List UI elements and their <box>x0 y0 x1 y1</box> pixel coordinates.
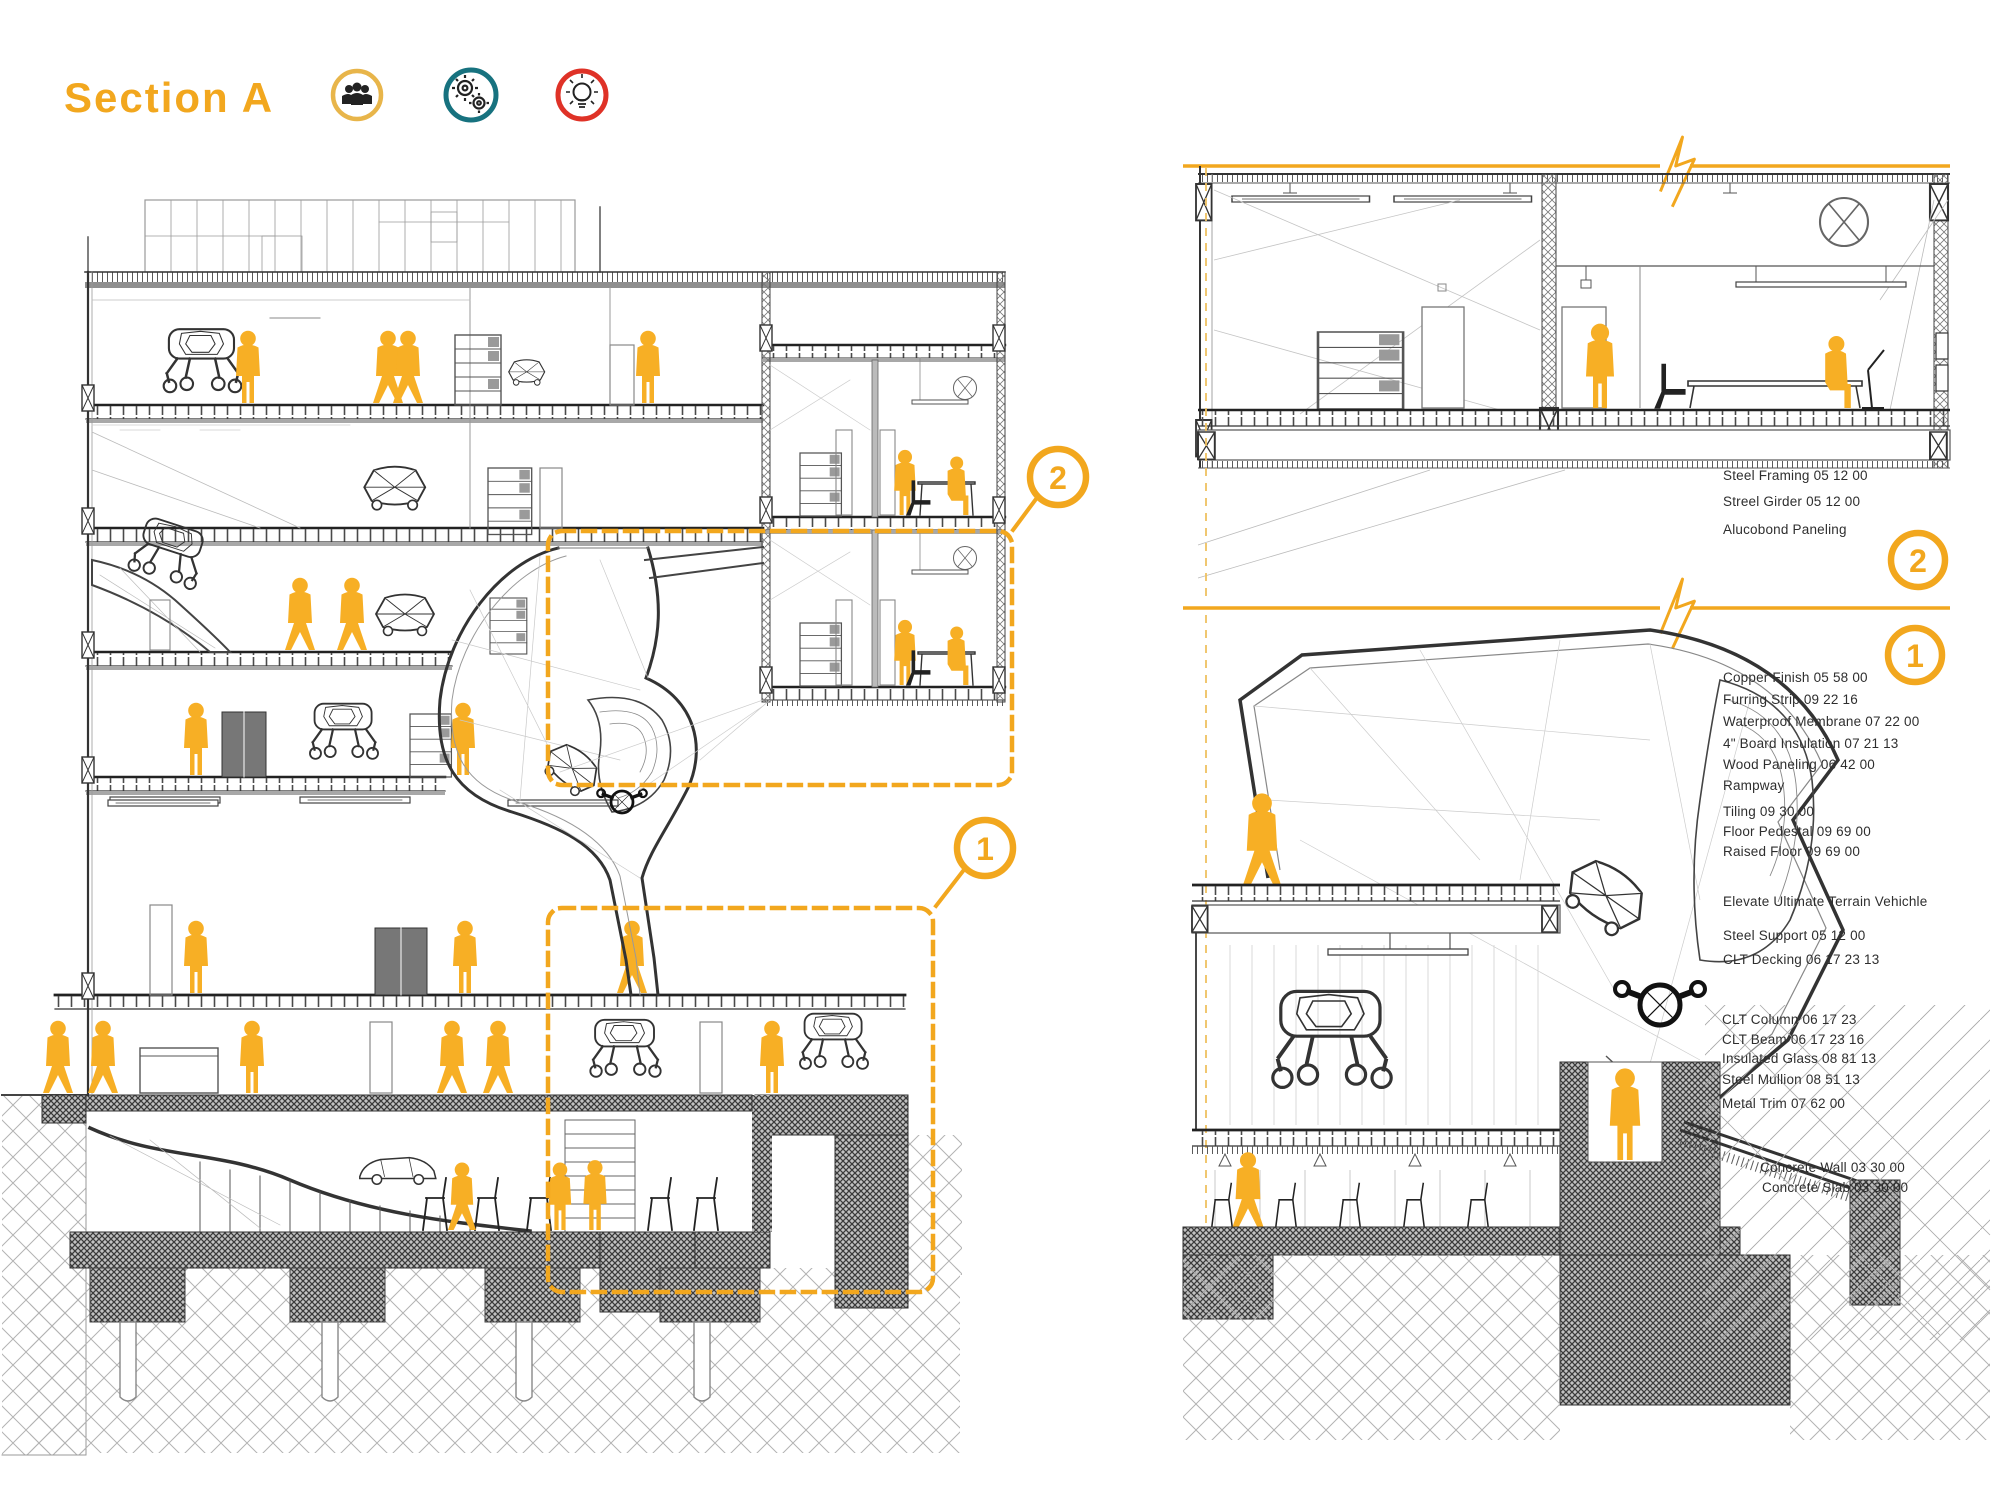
annotation-line: Steel Support 05 12 00 <box>1723 928 1866 943</box>
callout-circle-2-main: 2 <box>1030 449 1086 505</box>
annotation-line: Steel Mullion 08 51 13 <box>1722 1072 1860 1087</box>
annotation-line: CLT Column 06 17 23 <box>1722 1012 1857 1027</box>
d2-left-room <box>1214 190 1540 414</box>
d2-annotations: Steel Framing 05 12 00 Streel Girder 05 … <box>1723 468 1868 537</box>
header: Section A <box>64 70 606 121</box>
basement <box>90 1120 718 1232</box>
annotation-line: Waterproof Membrane 07 22 00 <box>1723 714 1919 729</box>
annotation-line: 4" Board Insulation 07 21 13 <box>1723 736 1899 751</box>
callout-circle-1-main: 1 <box>957 820 1013 876</box>
idea-icon <box>558 71 606 119</box>
annotation-line: Concrete Slab 03 30 00 <box>1762 1180 1908 1195</box>
annotation-line: Streel Girder 05 12 00 <box>1723 494 1860 509</box>
annotation-line: Floor Pedestal 09 69 00 <box>1723 824 1871 839</box>
annotation-line: Alucobond Paneling <box>1723 522 1847 537</box>
svg-text:2: 2 <box>1049 460 1067 496</box>
roof-slab <box>85 272 1005 288</box>
callout-circle-2-detail: 2 <box>1891 533 1945 587</box>
d1-walker-room <box>1192 933 1580 1166</box>
level4 <box>92 425 562 535</box>
drawing-sheet: Section A <box>0 0 2000 1500</box>
annotation-line: Rampway <box>1723 778 1784 793</box>
annotation-line: Elevate Ultimate Terrain Vehichle <box>1723 894 1927 909</box>
rooftop-equipment <box>88 200 600 272</box>
annotation-line: Raised Floor 09 69 00 <box>1723 844 1860 859</box>
d1-concrete <box>1183 1005 1990 1440</box>
annotation-line: Wood Paneling 06 42 00 <box>1723 757 1875 772</box>
svg-text:2: 2 <box>1909 543 1927 579</box>
annotation-line: CLT Decking 06 17 23 13 <box>1723 952 1879 967</box>
team-icon <box>333 71 381 119</box>
page-title: Section A <box>64 74 274 121</box>
level5 <box>92 300 660 405</box>
d2-right-room <box>1556 198 1934 408</box>
section-drawing: Section A <box>0 0 2000 1500</box>
svg-text:1: 1 <box>1906 638 1924 674</box>
annotation-line: Tiling 09 30 00 <box>1723 804 1814 819</box>
main-section: 2 1 <box>2 200 1086 1455</box>
callout-circle-1-detail: 1 <box>1888 628 1942 682</box>
gears-icon <box>446 70 496 120</box>
detail-2: Steel Framing 05 12 00 Streel Girder 05 … <box>1183 137 1950 587</box>
annotation-line: Concrete Wall 03 30 00 <box>1760 1160 1905 1175</box>
level1 <box>108 800 647 995</box>
annotation-line: CLT Beam 06 17 23 16 <box>1722 1032 1864 1047</box>
floor-decks <box>55 405 905 1111</box>
d2-ceiling <box>1198 174 1950 202</box>
annotation-line: Insulated Glass 08 81 13 <box>1722 1051 1876 1066</box>
annotation-line: Copper Finish 05 58 00 <box>1723 670 1868 685</box>
ground-level <box>43 1014 868 1093</box>
svg-text:1: 1 <box>976 831 994 867</box>
annotation-line: Furring Strip 09 22 16 <box>1723 692 1858 707</box>
annotation-line: Metal Trim 07 62 00 <box>1722 1096 1845 1111</box>
rampway-funnel <box>439 547 770 995</box>
annotation-line: Steel Framing 05 12 00 <box>1723 468 1868 483</box>
